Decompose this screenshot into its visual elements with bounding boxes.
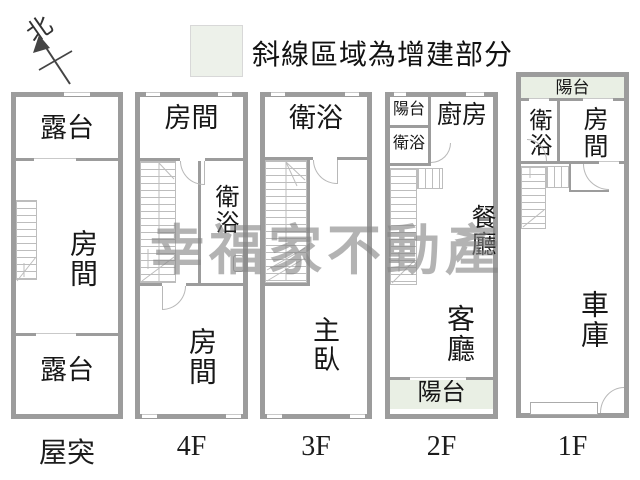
- floor-plan-canvas: 北 斜線區域為增建部分 露台 房間 露台 房間 衛浴: [0, 0, 640, 480]
- door-gap: [180, 158, 205, 161]
- room-label-room-bottom: 房間: [184, 319, 214, 394]
- window: [466, 92, 484, 96]
- garage-swing-door-arc: [600, 387, 624, 413]
- floor-label-3f: 3F: [260, 431, 372, 463]
- window: [142, 414, 157, 418]
- room-label-balcony: 陽台: [521, 78, 624, 98]
- window: [218, 92, 232, 96]
- interior-wall: [390, 163, 431, 166]
- interior-wall: [390, 125, 428, 128]
- window: [583, 98, 613, 101]
- window: [226, 414, 241, 418]
- stair-landing: [417, 168, 443, 189]
- window: [64, 92, 90, 96]
- legend-addition-swatch: [190, 25, 243, 77]
- floorplan-roof: 露台 房間 露台: [11, 92, 123, 419]
- stair-landing: [546, 166, 569, 188]
- stair-run-lines: [521, 166, 546, 229]
- room-label-garage: 車庫: [576, 284, 606, 356]
- door-leaf: [204, 161, 205, 185]
- stair-run-lines: [16, 253, 37, 283]
- door-arc: [180, 161, 204, 185]
- window: [146, 92, 160, 96]
- door-arc: [583, 164, 609, 190]
- window: [34, 158, 76, 161]
- room-label-balcony-top: 陽台: [390, 101, 428, 119]
- room-label-room: 房間: [578, 105, 606, 160]
- door-arc: [431, 143, 451, 163]
- room-label-room-top: 房間: [140, 103, 243, 134]
- north-arrow-icon: 北: [8, 4, 92, 92]
- room-label-master: 主臥: [309, 310, 337, 380]
- interior-wall: [569, 164, 571, 192]
- sliding-door: [410, 377, 466, 380]
- room-label-balcony-bottom: 陽台: [390, 380, 493, 408]
- room-label-bath: 衛浴: [390, 135, 428, 153]
- room-label-kitchen: 廚房: [431, 102, 493, 131]
- window: [599, 161, 619, 164]
- floorplan-1f: 陽台 衛浴 房間 車庫: [516, 72, 629, 418]
- floor-label-roof: 屋突: [11, 431, 123, 471]
- interior-wall: [557, 101, 560, 163]
- door-gap: [313, 157, 337, 160]
- room-label-terrace-bottom: 露台: [16, 355, 118, 386]
- door-arc: [162, 286, 186, 310]
- room-label-terrace-top: 露台: [16, 113, 118, 144]
- room-label-living: 客廳: [442, 303, 472, 365]
- door-arc: [313, 160, 337, 184]
- window: [394, 92, 406, 96]
- garage-door: [530, 402, 598, 415]
- floor-label-4f: 4F: [135, 431, 248, 463]
- room-label-bath: 衛浴: [265, 103, 367, 134]
- door-leaf: [162, 286, 163, 310]
- interior-wall: [569, 190, 609, 192]
- window: [36, 333, 76, 336]
- window: [267, 414, 282, 418]
- door-leaf: [337, 160, 338, 184]
- window: [271, 92, 285, 96]
- legend-text: 斜線區域為增建部分: [252, 33, 513, 73]
- floor-label-1f: 1F: [516, 431, 629, 463]
- window: [345, 92, 359, 96]
- watermark: 幸福家不動產: [150, 206, 520, 285]
- window: [350, 414, 365, 418]
- floor-label-2f: 2F: [385, 431, 498, 463]
- room-label-room: 房間: [65, 219, 95, 299]
- window: [529, 98, 549, 101]
